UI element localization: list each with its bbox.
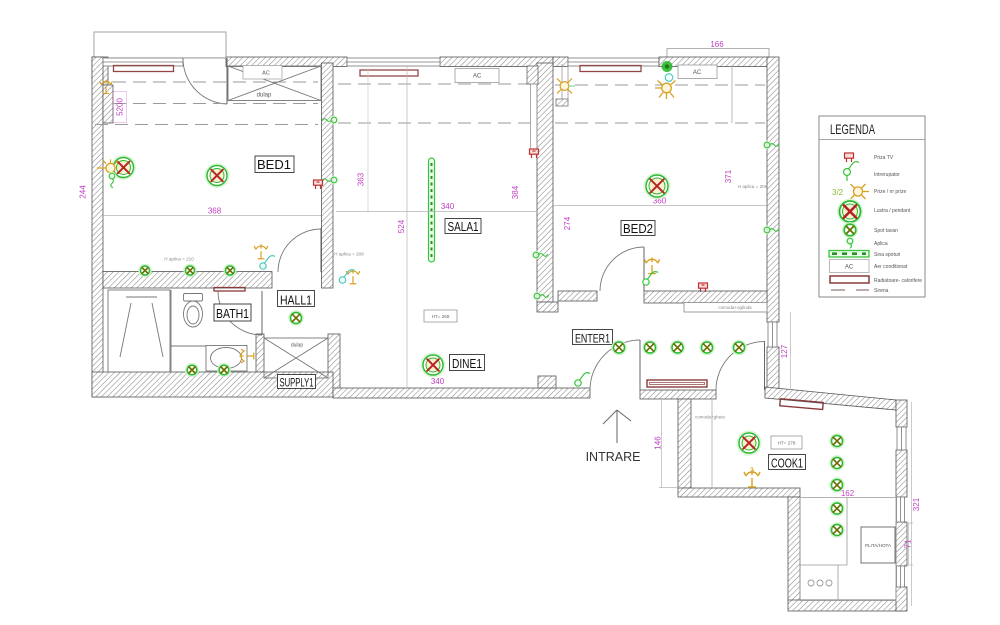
svg-text:ENTER1: ENTER1 bbox=[575, 331, 610, 345]
svg-text:Prize / nr prize: Prize / nr prize bbox=[874, 189, 906, 195]
svg-text:321: 321 bbox=[912, 497, 921, 511]
svg-text:Sirena: Sirena bbox=[874, 288, 889, 294]
svg-text:AC: AC bbox=[693, 70, 702, 76]
svg-text:274: 274 bbox=[563, 216, 572, 230]
svg-text:363: 363 bbox=[357, 172, 366, 186]
svg-text:BED1: BED1 bbox=[257, 157, 291, 172]
svg-text:162: 162 bbox=[841, 489, 855, 498]
svg-text:Aer conditionat: Aer conditionat bbox=[874, 264, 908, 270]
svg-text:146: 146 bbox=[654, 436, 663, 450]
svg-text:HT= 268: HT= 268 bbox=[432, 314, 450, 319]
svg-text:3/2: 3/2 bbox=[832, 188, 844, 197]
svg-text:166: 166 bbox=[710, 40, 724, 49]
svg-text:INTRARE: INTRARE bbox=[586, 450, 641, 464]
svg-text:Aplica: Aplica bbox=[874, 241, 888, 247]
svg-text:371: 371 bbox=[724, 169, 733, 183]
svg-text:H aplica = 208: H aplica = 208 bbox=[334, 252, 364, 257]
svg-text:368: 368 bbox=[208, 207, 222, 216]
svg-text:384: 384 bbox=[511, 185, 520, 199]
svg-text:comoda+oglinda: comoda+oglinda bbox=[718, 305, 752, 310]
svg-text:DINE1: DINE1 bbox=[452, 357, 482, 371]
svg-text:AC: AC bbox=[262, 71, 270, 77]
svg-text:dulap: dulap bbox=[291, 343, 303, 349]
svg-text:AC: AC bbox=[845, 265, 854, 271]
svg-text:71: 71 bbox=[904, 539, 913, 548]
svg-text:127: 127 bbox=[780, 344, 789, 358]
svg-text:Spot tavan: Spot tavan bbox=[874, 228, 898, 234]
svg-text:dulap: dulap bbox=[257, 93, 272, 99]
svg-text:SALA1: SALA1 bbox=[448, 220, 479, 234]
svg-text:340: 340 bbox=[431, 377, 445, 386]
svg-text:COOK1: COOK1 bbox=[771, 456, 803, 470]
svg-text:BED2: BED2 bbox=[623, 222, 653, 236]
svg-text:H aplica = 210: H aplica = 210 bbox=[164, 257, 194, 262]
svg-text:SUPPLY1: SUPPLY1 bbox=[280, 377, 314, 389]
svg-text:LEGENDA: LEGENDA bbox=[830, 121, 875, 137]
svg-text:HALL1: HALL1 bbox=[280, 292, 312, 307]
svg-text:comoda+ghete: comoda+ghete bbox=[695, 415, 725, 420]
svg-text:PLITA/HOTA: PLITA/HOTA bbox=[865, 543, 892, 548]
svg-text:BATH1: BATH1 bbox=[216, 306, 249, 321]
svg-text:244: 244 bbox=[79, 185, 88, 199]
svg-text:340: 340 bbox=[441, 202, 455, 211]
svg-text:HT= 278: HT= 278 bbox=[778, 441, 796, 446]
svg-text:Intrerupator: Intrerupator bbox=[874, 172, 900, 178]
svg-text:5200: 5200 bbox=[116, 98, 125, 116]
svg-text:H aplica = 208: H aplica = 208 bbox=[738, 184, 768, 189]
svg-text:AC: AC bbox=[473, 74, 482, 80]
svg-text:524: 524 bbox=[397, 219, 406, 233]
svg-text:Sina spoturi: Sina spoturi bbox=[874, 252, 900, 258]
svg-text:Priza TV: Priza TV bbox=[874, 155, 894, 161]
svg-text:Lustra / pendant: Lustra / pendant bbox=[874, 208, 911, 214]
svg-text:Radiatoare- calorifere: Radiatoare- calorifere bbox=[874, 278, 922, 284]
